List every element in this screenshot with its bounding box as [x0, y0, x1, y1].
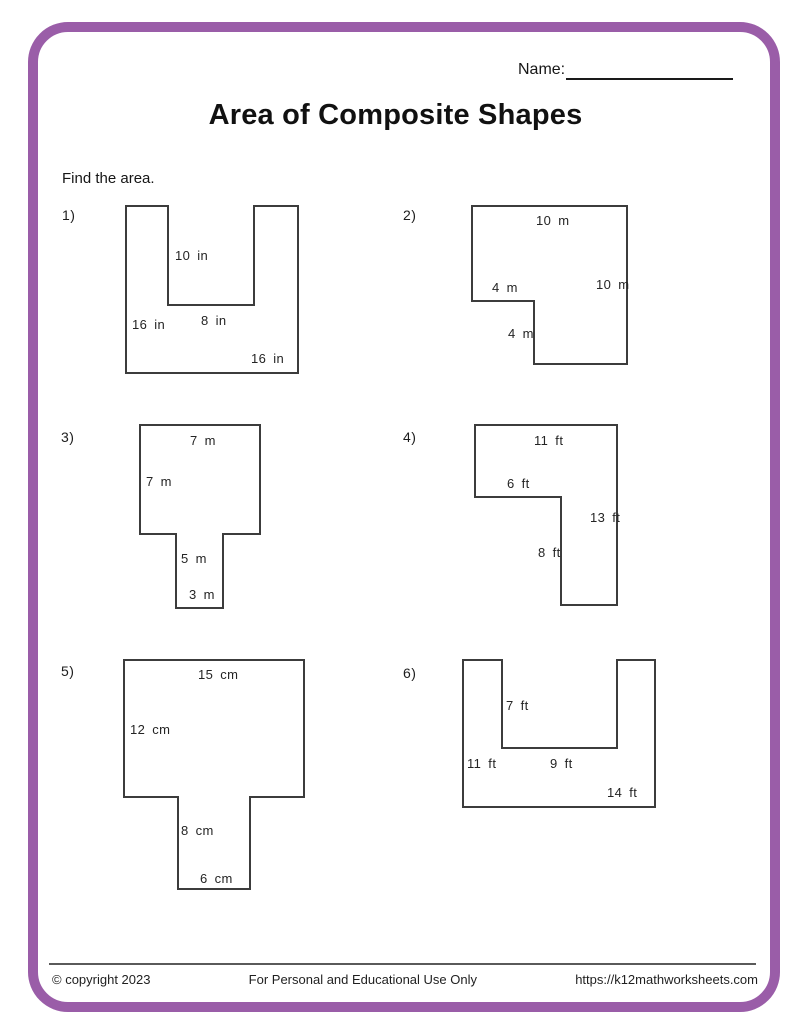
dimension-label: 8 ft — [538, 545, 561, 560]
problem-number: 1) — [62, 207, 75, 223]
dimension-label: 3 m — [189, 587, 215, 602]
dimension-label: 12 cm — [130, 722, 170, 737]
shape-5-t — [124, 660, 304, 889]
problem-number: 3) — [61, 429, 74, 445]
shape-3-t — [140, 425, 260, 608]
footer-usage-note: For Personal and Educational Use Only — [249, 972, 477, 987]
problem-number: 6) — [403, 665, 416, 681]
dimension-label: 10 m — [596, 277, 630, 292]
dimension-label: 14 ft — [607, 785, 637, 800]
problem-number: 4) — [403, 429, 416, 445]
dimension-label: 8 in — [201, 313, 227, 328]
shape-1-u — [126, 206, 298, 373]
footer: © copyright 2023 For Personal and Educat… — [49, 972, 758, 987]
dimension-label: 7 m — [190, 433, 216, 448]
dimension-label: 11 ft — [534, 433, 563, 448]
dimension-label: 4 m — [492, 280, 518, 295]
dimension-label: 7 m — [146, 474, 172, 489]
footer-divider — [49, 963, 756, 965]
footer-copyright: © copyright 2023 — [49, 972, 150, 987]
dimension-label: 8 cm — [181, 823, 214, 838]
problem-number: 5) — [61, 663, 74, 679]
dimension-label: 6 ft — [507, 476, 530, 491]
dimension-label: 13 ft — [590, 510, 620, 525]
dimension-label: 10 in — [175, 248, 208, 263]
dimension-label: 10 m — [536, 213, 570, 228]
dimension-label: 16 in — [251, 351, 284, 366]
dimension-label: 7 ft — [506, 698, 529, 713]
dimension-label: 6 cm — [200, 871, 233, 886]
dimension-label: 4 m — [508, 326, 534, 341]
composite-shapes-canvas — [0, 0, 800, 1035]
dimension-label: 5 m — [181, 551, 207, 566]
problem-number: 2) — [403, 207, 416, 223]
dimension-label: 9 ft — [550, 756, 573, 771]
dimension-label: 16 in — [132, 317, 165, 332]
dimension-label: 15 cm — [198, 667, 238, 682]
dimension-label: 11 ft — [467, 756, 496, 771]
footer-url: https://k12mathworksheets.com — [575, 972, 758, 987]
